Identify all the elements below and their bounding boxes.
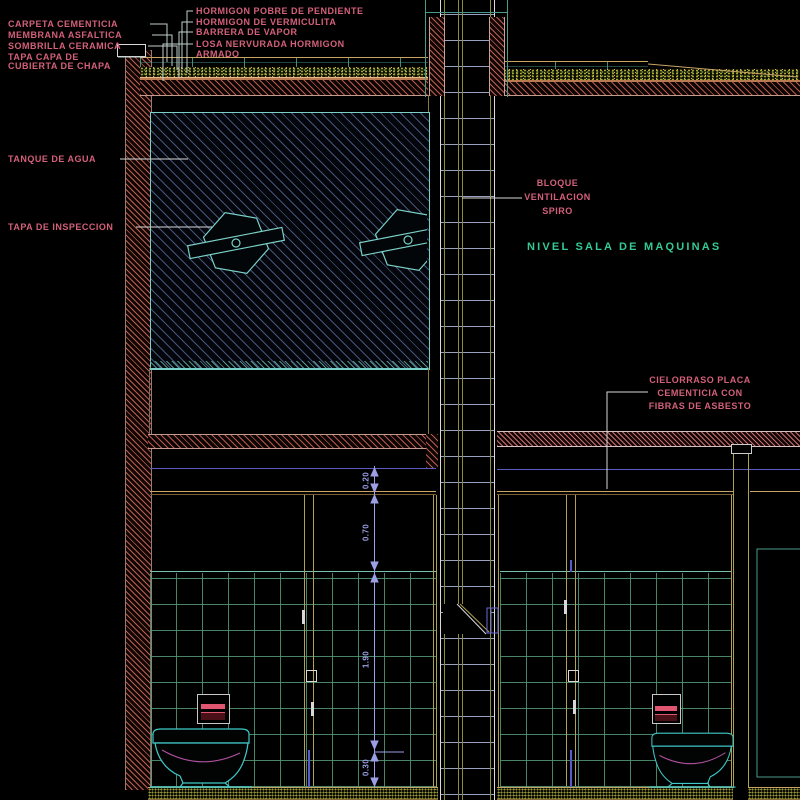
label-hormigon-pobre: HORMIGON POBRE DE PENDIENTE [196,6,364,16]
shower-outline [757,549,800,777]
roof-slope-line [648,64,798,77]
label-line: BLOQUE [500,176,615,190]
label-losa: LOSA NERVURADA HORMIGON [196,39,345,49]
label-line: CEMENTICIA CON [620,387,780,400]
label-line: CIELORRASO PLACA [620,374,780,387]
label-cielorraso: CIELORRASO PLACA CEMENTICIA CON FIBRAS D… [620,374,780,413]
inspection-cover-right [357,204,460,276]
duct-branch [457,604,498,634]
label-vermiculita: HORMIGON DE VERMICULITA [196,17,336,27]
label-line: VENTILACION [500,190,615,204]
roof-callout-leaders [118,11,193,81]
label-tapa-inspeccion: TAPA DE INSPECCION [8,222,113,232]
label-nivel-sala: NIVEL SALA DE MAQUINAS [527,242,721,252]
label-membrana: MEMBRANA ASFALTICA [8,30,122,40]
cad-section-drawing: CARPETA CEMENTICIA MEMBRANA ASFALTICA SO… [0,0,800,800]
dimension-text: 1.90 [362,646,371,674]
dimension-text: 0.20 [362,467,371,495]
label-line: SPIRO [500,204,615,218]
label-line: FIBRAS DE ASBESTO [620,400,780,413]
inspection-covers [185,204,460,279]
dimension-text: 0.70 [362,519,371,547]
label-losa: ARMADO [196,49,240,59]
dimension-chain [371,466,404,787]
label-carpeta: CARPETA CEMENTICIA [8,19,118,29]
inspection-cover-left [185,207,288,279]
label-bloque-ventilacion: BLOQUE VENTILACION SPIRO [500,176,615,218]
toilet-right [649,733,735,787]
dimension-text: 0.30 [362,754,371,782]
toilet-left [150,729,252,787]
label-barrera-vapor: BARRERA DE VAPOR [196,27,298,37]
label-sombrilla: SOMBRILLA CERAMICA [8,41,121,51]
label-tanque-agua: TANQUE DE AGUA [8,154,96,164]
label-tapa-chapa: CUBIERTA DE CHAPA [8,61,111,71]
